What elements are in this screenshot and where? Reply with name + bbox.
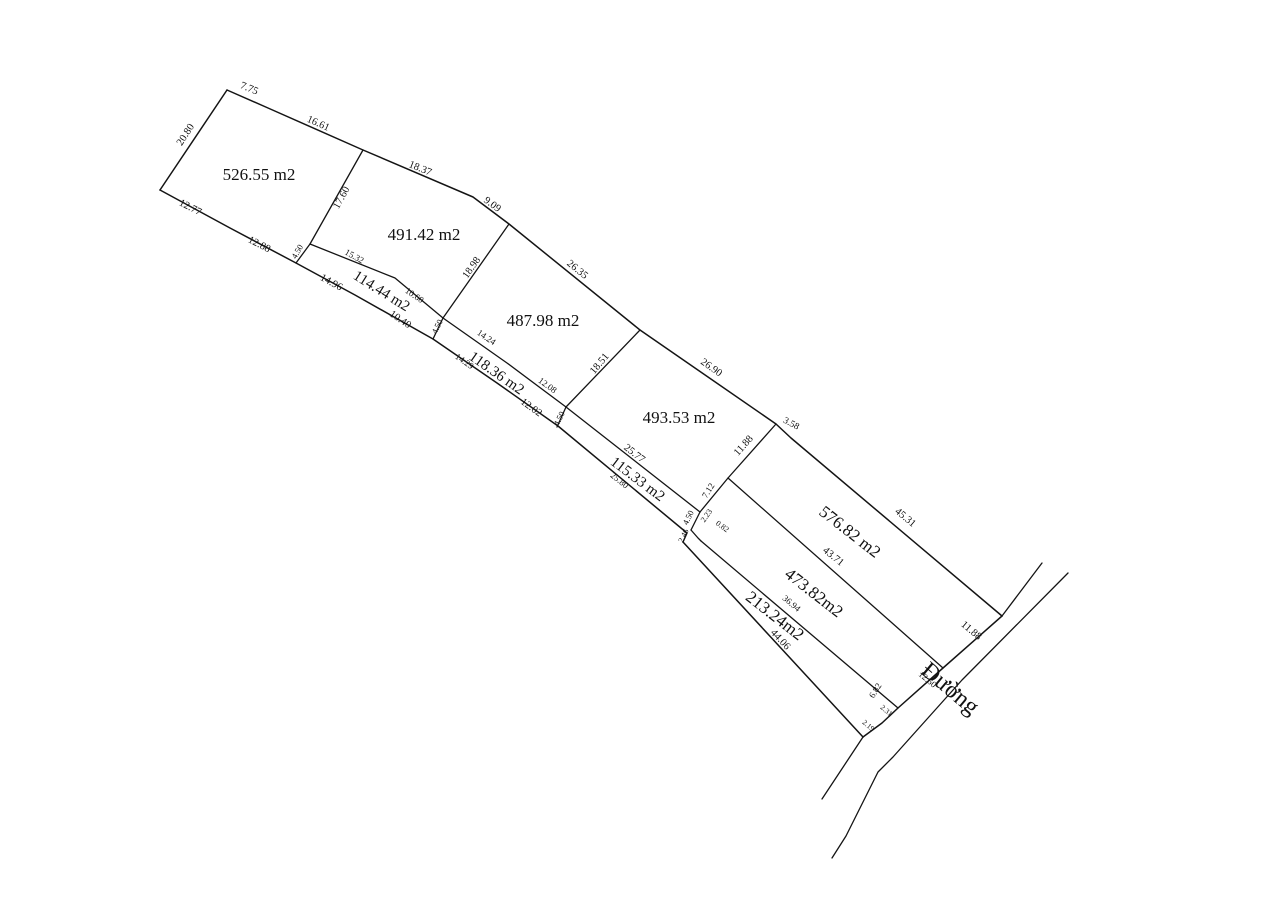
parcel-area-label: 473.82m2: [781, 564, 847, 621]
edge-measurement-label: 20.80: [175, 122, 197, 148]
edge-measurement-label: 12.08: [536, 375, 559, 395]
edge-measurement-label: 7.75: [238, 80, 259, 97]
cadastral-plan-svg: 526.55 m2491.42 m2487.98 m2493.53 m2576.…: [0, 0, 1280, 906]
edge-measurement-label: 12.77: [177, 198, 203, 219]
divider-parcel-576-473: [728, 478, 943, 668]
edge-measurement-label: 15.32: [343, 247, 366, 266]
edge-measurement-label: 0.82: [714, 519, 731, 535]
edge-measurement-label: 26.90: [698, 357, 724, 380]
road-edge-left-lower: [822, 737, 863, 799]
road-name-label: Đường: [916, 657, 984, 720]
edge-measurement-label: 12.88: [246, 235, 272, 256]
connector-junction-small: [691, 530, 701, 541]
parcel-area-label: 487.98 m2: [507, 311, 580, 330]
boundary-top-edge: [227, 90, 1002, 616]
labels-layer: 526.55 m2491.42 m2487.98 m2493.53 m2576.…: [175, 80, 984, 733]
edge-measurement-label: 17.60: [331, 185, 352, 211]
edge-measurement-label: 4.50: [551, 410, 567, 428]
road-edge-right: [832, 573, 1068, 858]
road-edge-left-upper: [1002, 563, 1042, 616]
parcel-area-label: 491.42 m2: [388, 225, 461, 244]
edge-measurement-label: 12.02: [518, 397, 544, 420]
survey-drawing-canvas: 526.55 m2491.42 m2487.98 m2493.53 m2576.…: [0, 0, 1280, 906]
edge-measurement-label: 2.19: [861, 718, 877, 733]
edge-measurement-label: 4.50: [289, 243, 305, 261]
boundary-bottom-edge: [160, 190, 863, 737]
edge-measurement-label: 18.98: [461, 255, 484, 281]
edge-measurement-label: 11.88: [959, 619, 984, 642]
parcel-area-label: 526.55 m2: [223, 165, 296, 184]
parcel-area-label: 114.44 m2: [350, 268, 412, 315]
edge-measurement-label: 14.24: [475, 327, 498, 347]
edge-measurement-label: 10.40: [387, 309, 413, 331]
parcel-area-label: 493.53 m2: [643, 408, 716, 427]
edge-measurement-label: 11.88: [732, 434, 756, 459]
divider-parcel-493-576: [700, 424, 776, 512]
edge-measurement-label: 2.46: [676, 527, 690, 544]
edge-measurement-label: 14.96: [318, 272, 344, 293]
edge-measurement-label: 43.71: [820, 545, 845, 568]
edge-measurement-label: 18.37: [407, 159, 433, 178]
edge-measurement-label: 2.31: [879, 703, 895, 718]
edge-measurement-label: 3.58: [781, 416, 801, 433]
boundary-left-edge: [160, 90, 227, 190]
edge-measurement-label: 7.12: [700, 481, 717, 500]
